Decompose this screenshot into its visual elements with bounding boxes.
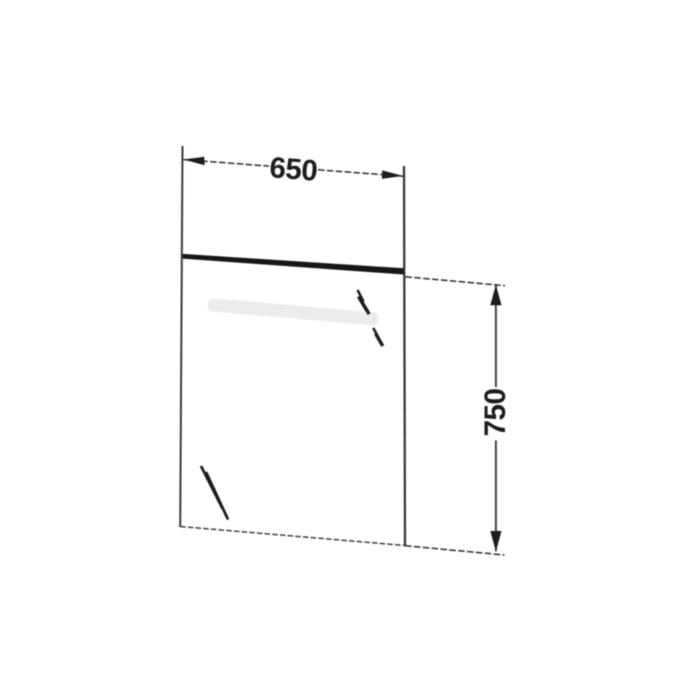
svg-text:650: 650 <box>268 151 318 187</box>
svg-text:750: 750 <box>479 389 512 437</box>
